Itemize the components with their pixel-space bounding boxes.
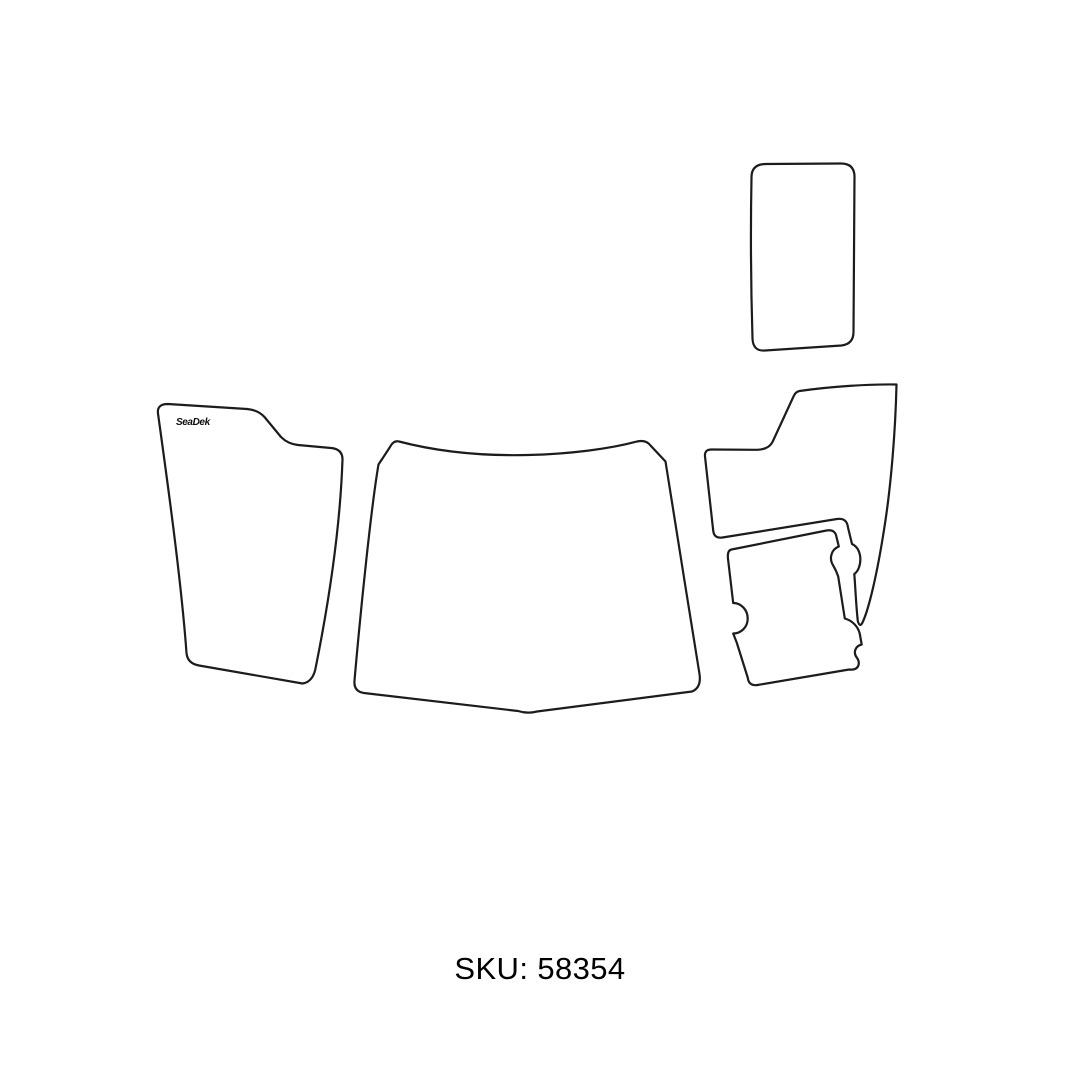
product-template-image: SeaDek SKU: 58354: [0, 0, 1080, 1080]
center-pad-outline: [354, 441, 699, 713]
brand-wordmark: SeaDek: [176, 417, 210, 429]
step-pad-outline: [751, 164, 855, 351]
sku-label: SKU: 58354: [0, 951, 1080, 987]
port-side-pad-outline: [158, 404, 343, 684]
template-pieces-diagram: [0, 0, 1080, 1080]
starboard-lower-pad-outline: [728, 530, 862, 685]
